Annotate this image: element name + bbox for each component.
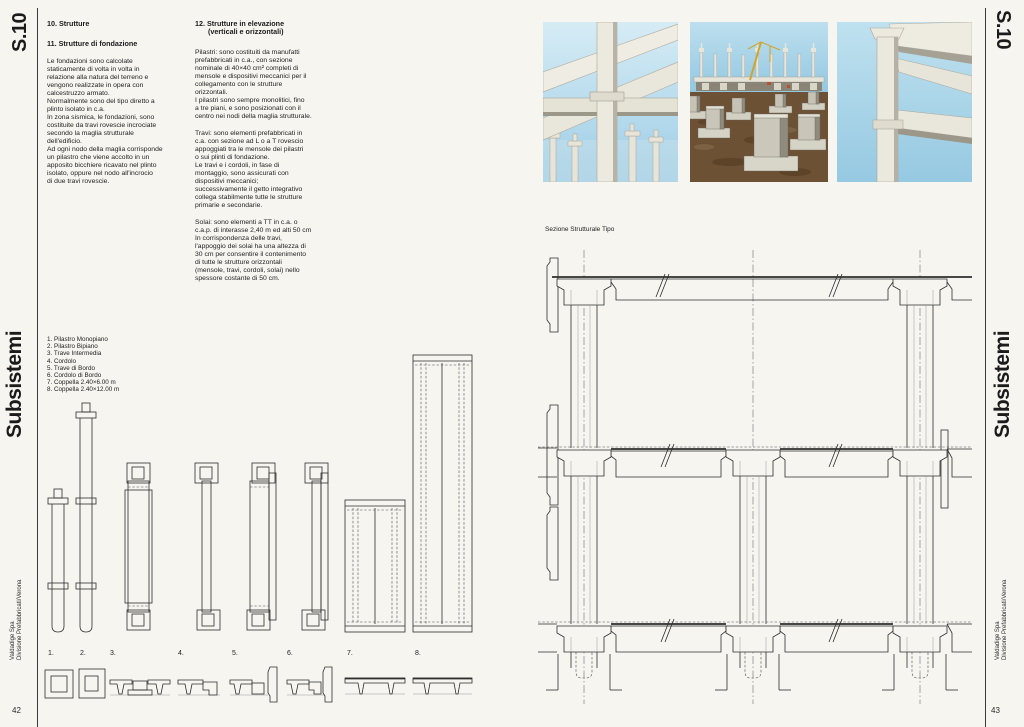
figure-pilastro-monopiano [48,489,68,632]
figure-number: 3. [110,650,116,657]
figure-number: 7. [347,650,353,657]
publisher-left: Valdadige Spa Divisione Prefabbricati/Ve… [10,580,24,660]
heading-strutture-elevazione-sub: (verticali e orizzontali) [195,28,357,36]
heading-strutture-fondazione: 11. Strutture di fondazione [47,40,197,48]
heading-strutture: 10. Strutture [47,20,197,28]
photo-beam-column-joint [543,22,678,182]
column-shade [894,37,898,182]
article-column-2: 12. Strutture in elevazione (verticali e… [195,20,357,283]
figure-number: 4. [178,650,184,657]
photo1-art [543,22,678,182]
photo3-art [837,22,972,182]
page-number-left: 42 [12,706,21,715]
figure-numbers: 1. 2. 3. 4. 5. 6. 7. 8. [48,650,421,657]
section-code-right: S.10 [991,10,1014,49]
section-drawing-label: Sezione Strutturale Tipo [545,226,614,233]
figure-trave-di-bordo [247,463,276,630]
corbel [873,120,903,129]
floor-band [538,444,972,477]
column-shade [613,22,617,182]
photo-plinth-foundations [690,22,828,182]
corbel [590,92,624,101]
publisher-division: Divisione Prefabbricati/Verona [1002,580,1009,660]
section-code-left: S.10 [9,13,32,52]
equipment-red [787,85,790,88]
series-title-right: Subsistemi [991,331,1015,438]
structural-section-drawing [538,246,972,710]
footings [546,652,958,690]
figure-number: 8. [415,650,421,657]
figure-pilastro-bipiano [76,403,96,632]
edge-panel-right [941,430,948,508]
publisher-division: Divisione Prefabbricati/Verona [17,580,24,660]
figure-number: 6. [287,650,293,657]
legend-item: 1. Pilastro Monopiano [47,336,119,343]
columns-lower [571,476,933,624]
component-figures: 1. 2. 3. 4. 5. 6. 7. 8. [40,350,485,712]
article-column-1: 10. Strutture 11. Strutture di fondazion… [47,20,197,186]
publisher-name: Valdadige Spa [995,580,1002,660]
edge-panels [547,258,558,580]
figure-number: 1. [48,650,54,657]
series-title-left: Subsistemi [3,331,27,438]
publisher-name: Valdadige Spa [10,580,17,660]
left-column-rule [37,8,38,727]
roof-band [552,274,972,305]
page-number-right: 43 [991,706,1000,715]
body-travi: Travi: sono elementi prefabbricati in c.… [195,130,357,210]
figure-number: 2. [80,650,86,657]
photo2-art [690,22,828,182]
columns-upper [571,305,933,448]
right-column-rule [985,8,986,727]
publisher-right: Valdadige Spa Divisione Prefabbricati/Ve… [995,580,1009,660]
figure-trave-intermedia [125,463,152,630]
photo-column-roof-beams [837,22,972,182]
figure-coppella-12m [413,355,472,632]
body-pilastri: Pilastri: sono costituiti da manufatti p… [195,49,357,121]
figure-number: 5. [232,650,238,657]
equipment-red [767,82,771,85]
figure-cordolo [195,463,220,630]
body-fondazioni: Le fondazioni sono calcolate staticament… [47,58,197,186]
catalog-spread: S.10 Subsistemi Valdadige Spa Divisione … [0,0,1024,727]
cross-sections [45,667,472,702]
body-solai: Solai: sono elementi a TT in c.a. o c.a.… [195,219,357,283]
figure-coppella-6m [345,500,405,632]
figure-cordolo-di-bordo [302,463,328,630]
